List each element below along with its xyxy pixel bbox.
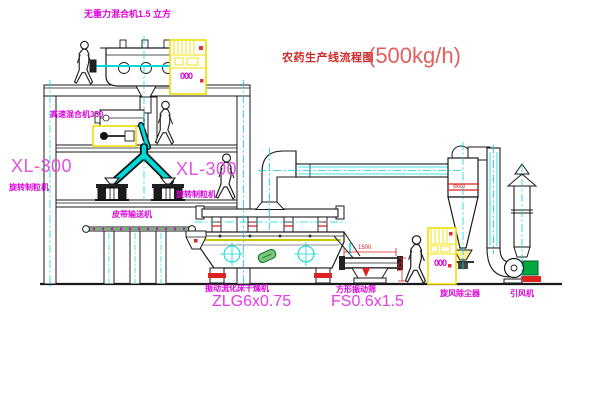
sieve-model-label: FS0.6x1.5 [331, 294, 404, 310]
vibrating-sieve [334, 232, 406, 283]
dryer-model-label: ZLG6x0.75 [212, 294, 291, 310]
dryer-exhaust-duct [256, 151, 449, 210]
pesticide-line-diagram: 无重力混合机1.5 立方 农药生产线流程图 (500kg/h) 高速混合机350… [0, 0, 600, 403]
sieve-height-dim: 541 [395, 262, 401, 272]
diagram-capacity: (500kg/h) [368, 45, 461, 67]
fluid-bed-dryer [196, 206, 344, 283]
dryer-lid [202, 209, 338, 217]
dryer-label: 振动流化床干燥机 [205, 285, 269, 293]
person-ground [406, 236, 426, 283]
granulator-left-model: XL-300 [11, 157, 72, 175]
granulator-right-model: XL-300 [176, 160, 237, 178]
fan-motor [523, 261, 538, 275]
fan-label: 引风机 [510, 290, 534, 298]
granulator-left [95, 178, 129, 200]
sieve-length-dim: 1500 [358, 245, 371, 251]
gravity-mixer-label: 无重力混合机1.5 立方 [84, 10, 171, 19]
cyclone-marking: Φ800 [453, 185, 465, 190]
granulator-right-name: 旋转制粒机 [176, 191, 216, 199]
cabinet-bottom-marking: 000 [434, 259, 446, 268]
person-floor2 [156, 101, 174, 144]
induced-draft-fan [504, 259, 541, 284]
belt-conveyor [83, 226, 196, 284]
diagram-title: 农药生产线流程图 [282, 53, 374, 64]
cyclone-label: 旋风除尘器 [440, 290, 480, 298]
cyclone-outlet-pipe [487, 148, 510, 277]
high-speed-mixer-label: 高速混合机350 [50, 111, 103, 119]
floor3-slab [56, 200, 237, 207]
belt-conveyor-label: 皮带输送机 [112, 211, 152, 219]
cabinet-top-marking: 000 [180, 72, 192, 81]
granulator-left-name: 旋转制粒机 [9, 184, 49, 192]
control-cabinet-top [170, 40, 206, 94]
control-cabinet-bottom [428, 228, 456, 284]
